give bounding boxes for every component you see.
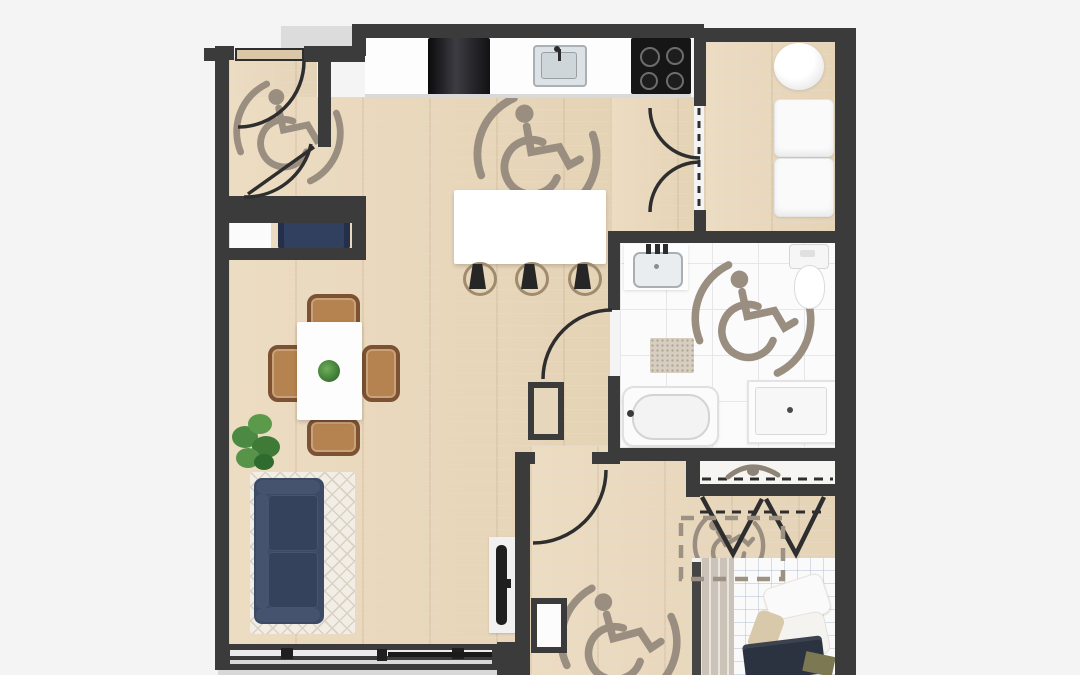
wall-bathroom-left-upper [608,242,620,310]
wall-left [215,46,229,646]
burner-icon [640,72,658,90]
kitchen-island [454,190,606,264]
sofa-back [256,494,268,608]
window-mullion [377,649,387,661]
wall-nook-top [215,196,366,223]
tv-icon [496,545,507,625]
window-mullion [281,648,293,659]
bath-faucet-icon [655,244,660,254]
wall-laundry-left-upper [694,42,706,106]
dining-chair [362,345,400,402]
bath-mat [650,338,694,373]
entry-bench [278,219,350,249]
kitchen-faucet-spout [558,49,561,61]
wall-bathroom-left-lower [608,376,620,450]
wall-outer-stub [204,48,216,61]
bath-faucet-icon [646,244,651,254]
sofa-cushion [268,552,318,608]
dryer [774,158,834,217]
wall-bathroom-bottom [608,448,835,461]
wall-nook-bottom [215,248,366,260]
toilet-flush-button [800,250,815,257]
washer [774,99,834,157]
bed-footboard [692,562,701,675]
burner-icon [666,47,684,65]
floor-plan-canvas [0,0,1080,675]
wall-sw-corner [497,642,530,675]
wall-right [835,28,856,675]
sofa-cushion [268,495,318,551]
wall-entry-closet-right [318,46,331,147]
floor-bedroom-closet [700,461,835,485]
floor-kitchen-hall [610,97,694,237]
wall-bedroom-north-right [592,452,620,464]
window-glass [230,660,492,664]
sofa-armrest [256,480,320,494]
table-plant [318,360,340,382]
bedroom-dresser-niche [531,598,567,653]
wall-nook-right [352,196,366,260]
dining-chair [307,418,360,456]
bathtub-basin [632,394,710,440]
wall-closet-strip-bottom [686,484,835,496]
sofa [254,478,324,624]
hallway-closet [528,382,564,440]
wall-bedroom-north-left [515,452,535,464]
wall-entry-stub [215,46,234,60]
bed [692,558,835,675]
sink-drain [654,264,659,269]
tv-mount [507,579,511,588]
tub-faucet-icon [627,410,634,417]
water-heater [774,43,824,90]
shower-drain [787,407,793,413]
burner-icon [640,47,660,67]
counter-edge [365,94,691,98]
wall-kitchen-stub [352,38,366,56]
bath-sink [633,252,683,288]
wall-bathroom-top [608,231,856,243]
sofa-armrest [256,608,320,622]
burner-icon [666,72,684,90]
kitchen-counter-left [365,38,428,96]
floor-plant [228,412,282,470]
entry-shelf [229,220,272,250]
toilet-bowl [794,265,825,309]
bed-throw-gray [700,558,734,675]
sliding-door-frame [388,652,492,657]
wall-top-kitchen [352,24,704,38]
bath-faucet-icon [663,244,668,254]
wall-top-laundry [694,28,856,42]
refrigerator [428,38,490,98]
